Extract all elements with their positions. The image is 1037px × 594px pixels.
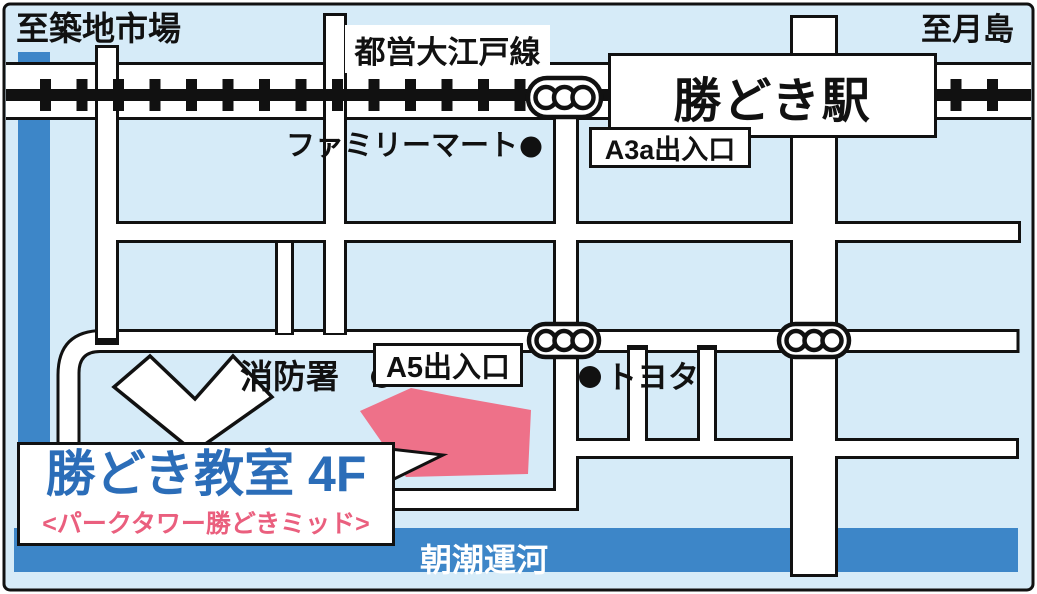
a3a-exit-box: A3a出入口 <box>589 127 751 168</box>
to-tsukiji-label: 至築地市場 <box>16 12 181 45</box>
oedo-line-label: 都営大江戸線 <box>345 25 550 73</box>
familymart-label: ファミリーマート <box>286 132 518 161</box>
traffic-signal-icon <box>529 324 599 357</box>
kachidoki-station-box: 勝どき駅 <box>608 53 937 138</box>
to-tsukishima-label: 至月島 <box>921 14 1014 45</box>
fire-station-label: 消防署 <box>240 360 339 393</box>
toyota-label: トヨタ <box>606 362 699 393</box>
asashio-canal-label: 朝潮運河 <box>420 535 548 581</box>
building-name: <パークタワー勝どきミッド> <box>42 504 369 540</box>
place-dot-icon <box>579 366 601 388</box>
classroom-name: 勝どき教室 4F <box>46 448 367 500</box>
traffic-signal-icon <box>528 78 601 117</box>
traffic-signal-icon <box>779 324 849 357</box>
place-dot-icon <box>521 137 542 158</box>
kachidoki-classroom-box: 勝どき教室 4F <パークタワー勝どきミッド> <box>17 442 395 546</box>
kachidoki-access-map: 至築地市場 都営大江戸線 至月島 勝どき駅 A3a出入口 ファミリーマート A5… <box>0 0 1037 594</box>
a5-exit-box: A5出入口 <box>373 343 523 387</box>
